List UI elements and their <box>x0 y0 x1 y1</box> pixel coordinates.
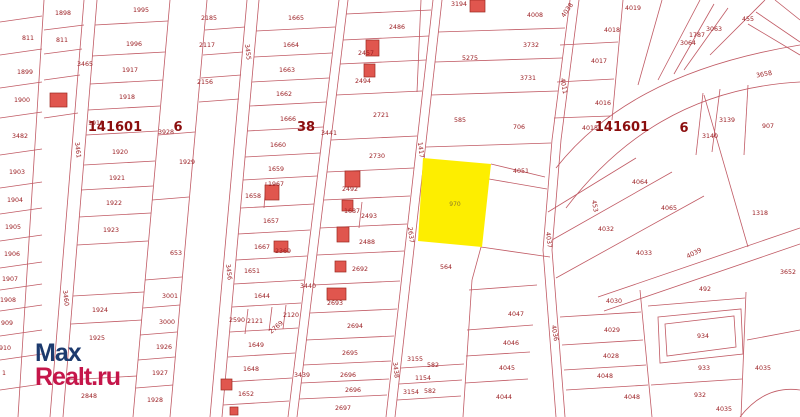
road-curve <box>740 389 800 417</box>
parcel-line <box>604 244 800 311</box>
parcel-number-label: 2637 <box>406 227 415 244</box>
parcel-line <box>651 379 742 385</box>
parcel-number-label: 2590 <box>229 317 245 324</box>
parcel-number-label: 4017 <box>591 58 607 65</box>
parcel-number-label: 2494 <box>355 78 371 85</box>
building-footprint <box>335 261 346 272</box>
parcel-line <box>481 247 550 257</box>
parcel-number-label: 1996 <box>126 41 142 48</box>
parcel-number-label: 4037 <box>544 232 553 249</box>
parcel-line <box>566 385 648 390</box>
parcel-number-label: 3440 <box>300 283 316 290</box>
parcel-line <box>426 143 551 147</box>
parcel-line <box>640 290 652 417</box>
parcel-number-label: 1318 <box>752 210 768 217</box>
parcel-line <box>438 28 565 32</box>
parcel-number-label: 3455 <box>243 44 252 61</box>
parcel-line <box>310 309 397 313</box>
parcel-line <box>241 204 314 208</box>
parcel-number-label: 492 <box>699 286 711 293</box>
building-footprint <box>364 64 375 77</box>
parcel-line <box>210 0 247 417</box>
block-number-label: 141601 <box>88 120 142 135</box>
parcel-number-label: 3456 <box>224 264 233 281</box>
parcel-number-label: 582 <box>424 388 436 395</box>
parcel-line <box>431 91 558 95</box>
parcel-number-label: 585 <box>454 117 466 124</box>
parcel-number-label: 1899 <box>17 69 33 76</box>
parcel-line <box>136 385 173 388</box>
building-footprint <box>230 407 238 415</box>
parcel-line <box>346 10 431 14</box>
parcel-number-label: 1904 <box>7 197 23 204</box>
parcel-line <box>90 80 163 84</box>
parcel-line <box>756 12 800 42</box>
parcel-line <box>201 75 241 78</box>
parcel-line <box>225 378 292 382</box>
parcel-line <box>199 99 239 102</box>
parcel-number-label: 907 <box>762 123 774 130</box>
building-footprint <box>327 288 346 300</box>
parcel-line <box>0 49 42 55</box>
parcel-number-label: 4045 <box>499 365 515 372</box>
parcel-line <box>88 106 160 110</box>
parcel-line <box>340 60 426 64</box>
parcel-line <box>145 277 182 280</box>
parcel-number-label: 1927 <box>152 370 168 377</box>
parcel-number-label: 1659 <box>268 166 284 173</box>
parcel-line <box>205 27 245 30</box>
parcel-line <box>133 0 170 417</box>
parcel-line <box>0 182 42 188</box>
parcel-number-label: 2369 <box>275 248 291 255</box>
parcel-number-label: 2493 <box>361 213 377 220</box>
parcel-line <box>301 379 389 383</box>
parcel-number-label: 2696 <box>340 372 356 379</box>
parcel-line <box>552 0 570 140</box>
parcel-line <box>81 186 153 190</box>
parcel-line <box>288 0 339 417</box>
parcel-number-label: 1644 <box>254 293 270 300</box>
parcel-line <box>95 21 168 25</box>
parcel-line <box>138 357 175 360</box>
parcel-number-label: 1 <box>2 370 6 377</box>
parcel-number-label: 4064 <box>632 179 648 186</box>
parcel-number-label: 1662 <box>276 91 292 98</box>
parcel-number-label: 2457 <box>358 50 374 57</box>
parcel-number-label: 1649 <box>248 342 264 349</box>
parcel-number-label: 653 <box>170 250 182 257</box>
block-number-label: 6 <box>173 120 182 135</box>
parcel-number-label: 3460 <box>61 290 70 307</box>
parcel-line <box>747 330 800 340</box>
parcel-number-label: 2721 <box>373 112 389 119</box>
parcel-number-label: 1663 <box>279 67 295 74</box>
parcel-line <box>775 0 800 20</box>
parcel-line <box>303 361 391 365</box>
parcel-number-label: 932 <box>694 392 706 399</box>
parcel-line <box>297 0 348 417</box>
parcel-number-label: 3731 <box>520 75 536 82</box>
parcel-number-label: 4018 <box>604 27 620 34</box>
parcel-line <box>254 53 332 57</box>
parcel-number-label: 1906 <box>4 251 20 258</box>
parcel-line <box>152 197 189 200</box>
parcel-number-label: 3482 <box>12 133 28 140</box>
parcel-line <box>435 58 562 62</box>
parcel-number-label: 3439 <box>294 372 310 379</box>
parcel-number-label: 811 <box>22 35 34 42</box>
parcel-line <box>230 328 298 332</box>
parcel-number-label: 3140 <box>702 133 718 140</box>
parcel-number-label: 1658 <box>245 193 261 200</box>
parcel-line <box>234 280 304 284</box>
building-footprint <box>221 379 232 390</box>
parcel-line <box>562 340 643 345</box>
parcel-line <box>306 336 394 340</box>
parcel-line <box>222 0 259 417</box>
parcel-number-label: 1923 <box>103 227 119 234</box>
parcel-line <box>327 168 414 172</box>
parcel-number-label: 4029 <box>604 327 620 334</box>
parcel-line <box>317 251 404 255</box>
parcel-line <box>252 78 329 82</box>
parcel-number-label: 4030 <box>606 298 622 305</box>
block-number-label: 141601 <box>595 120 649 135</box>
parcel-number-label: 2121 <box>247 318 263 325</box>
parcel-number-label: 3652 <box>780 269 796 276</box>
parcel-line <box>245 153 320 157</box>
parcel-line <box>552 140 561 250</box>
parcel-line <box>232 303 301 307</box>
parcel-number-label: 1660 <box>270 142 286 149</box>
parcel-number-label: 4039 <box>686 247 703 261</box>
parcel-line <box>561 0 579 140</box>
parcel-number-label: 4048 <box>597 373 613 380</box>
parcel-line <box>612 0 623 120</box>
parcel-line <box>0 305 42 311</box>
parcel-number-label: 3064 <box>680 40 696 47</box>
parcel-line <box>0 112 42 118</box>
parcel-number-label: 4035 <box>716 406 732 413</box>
parcel-number-label: 3139 <box>719 117 735 124</box>
parcel-number-label: 4035 <box>755 365 771 372</box>
parcel-number-label: 1917 <box>122 67 138 74</box>
parcel-number-label: 1907 <box>2 276 18 283</box>
parcel-line <box>79 213 151 217</box>
parcel-line <box>313 281 400 285</box>
parcel-number-label: 4047 <box>508 311 524 318</box>
parcel-number-label: 5275 <box>462 55 478 62</box>
parcel-number-label: 453 <box>590 200 599 213</box>
parcel-number-label: 1664 <box>283 42 299 49</box>
parcel-number-label: 4019 <box>625 5 641 12</box>
parcel-number-label: 1667 <box>254 244 270 251</box>
parcel-number-label: 1967 <box>268 181 284 188</box>
parcel-line <box>397 396 461 400</box>
parcel-line <box>44 49 82 54</box>
parcel-number-label: 1924 <box>92 307 108 314</box>
parcel-number-label: 909 <box>1 320 13 327</box>
parcel-number-label: 2695 <box>342 350 358 357</box>
parcel-line <box>489 179 547 189</box>
maxrealt-logo: Max Realt.ru <box>35 342 120 390</box>
parcel-line <box>0 82 42 88</box>
parcel-line <box>469 285 537 290</box>
parcel-number-label: 2156 <box>197 79 213 86</box>
parcel-number-label: 2693 <box>327 300 343 307</box>
parcel-line <box>0 235 42 241</box>
parcel-line <box>84 161 155 165</box>
parcel-number-label: 1929 <box>179 159 195 166</box>
parcel-number-label: 2486 <box>389 24 405 31</box>
parcel-number-label: 564 <box>440 264 452 271</box>
parcel-number-label: 1921 <box>109 175 125 182</box>
parcel-number-label: 2694 <box>347 323 363 330</box>
parcel-number-label: 2697 <box>335 405 351 412</box>
parcel-number-label: 2120 <box>283 312 299 319</box>
parcel-number-label: 1908 <box>0 297 16 304</box>
building-footprint <box>345 171 360 187</box>
parcel-number-label: 1665 <box>288 15 304 22</box>
parcel-line <box>140 332 177 335</box>
parcel-number-label: 1918 <box>119 94 135 101</box>
parcel-number-label: 4046 <box>503 340 519 347</box>
parcel-number-label: 1898 <box>55 10 71 17</box>
parcel-line <box>143 305 180 308</box>
parcel-number-label: 811 <box>56 37 68 44</box>
parcel-number-label: 4044 <box>496 394 512 401</box>
parcel-number-label: 4016 <box>595 100 611 107</box>
parcel-number-label: 1995 <box>133 7 149 14</box>
parcel-line <box>0 16 42 22</box>
parcel-number-label: 4028 <box>603 353 619 360</box>
parcel-number-label: 2848 <box>81 393 97 400</box>
parcel-line <box>256 27 335 31</box>
building-footprint <box>50 93 67 107</box>
parcel-line <box>170 0 207 417</box>
parcel-number-label: 3438 <box>391 362 400 379</box>
parcel-line <box>463 280 472 417</box>
parcel-line <box>44 25 84 30</box>
parcel-line <box>331 136 417 140</box>
parcel-line <box>44 75 80 80</box>
parcel-number-label: 2696 <box>345 387 361 394</box>
parcel-line <box>236 256 307 260</box>
parcel-line <box>324 196 410 200</box>
parcel-line <box>223 401 289 405</box>
parcel-line <box>472 247 481 280</box>
parcel-line <box>744 85 748 155</box>
parcel-line <box>71 320 142 324</box>
parcel-number-label: 3000 <box>159 319 175 326</box>
parcel-number-label: 933 <box>698 365 710 372</box>
parcel-number-label: 3465 <box>77 61 93 68</box>
parcel-number-label: 706 <box>513 124 525 131</box>
parcel-line <box>0 330 42 336</box>
parcel-number-label: 2492 <box>342 186 358 193</box>
parcel-number-label: 1900 <box>14 97 30 104</box>
building-footprint <box>337 227 349 242</box>
parcel-line <box>228 353 295 357</box>
parcel-line <box>467 325 533 330</box>
logo-line2: Realt.ru <box>35 366 120 390</box>
parcel-line <box>638 0 662 85</box>
parcel-line <box>466 352 530 356</box>
parcel-number-label: 3154 <box>403 389 419 396</box>
parcel-line <box>250 102 326 106</box>
parcel-line <box>238 230 310 234</box>
parcel-number-label: 1926 <box>156 344 172 351</box>
parcel-number-label: 1928 <box>147 397 163 404</box>
parcel-number-label: 2185 <box>201 15 217 22</box>
parcel-number-label: 1687 <box>344 208 360 215</box>
parcel-number-label: 934 <box>697 333 709 340</box>
parcel-line <box>343 36 429 40</box>
parcel-number-label: 2488 <box>359 239 375 246</box>
parcel-number-label: 910 <box>0 345 11 352</box>
parcel-number-label: 3001 <box>162 293 178 300</box>
parcel-number-label: 1651 <box>244 268 260 275</box>
parcel-line <box>0 262 42 268</box>
parcel-number-label: 4008 <box>527 12 543 19</box>
parcel-line <box>44 113 78 118</box>
parcel-number-label: 2730 <box>369 153 385 160</box>
parcel-line <box>560 42 618 45</box>
parcel-number-label: 1666 <box>280 116 296 123</box>
parcel-line <box>417 0 421 92</box>
block-number-label: 6 <box>679 121 688 136</box>
parcel-line <box>0 284 42 290</box>
parcel-number-label: 4011 <box>558 78 568 95</box>
parcel-number-label: 1648 <box>243 366 259 373</box>
parcel-line <box>336 91 422 95</box>
parcel-line <box>556 196 704 278</box>
parcel-line <box>748 24 800 55</box>
parcel-number-label: 2769 <box>268 320 285 336</box>
parcel-number-label: 4048 <box>624 394 640 401</box>
parcel-line <box>73 292 144 296</box>
parcel-number-label: 582 <box>427 362 439 369</box>
parcel-line <box>203 52 243 55</box>
parcel-number-label: 1922 <box>106 200 122 207</box>
parcel-number-label: 1657 <box>263 218 279 225</box>
parcel-line <box>320 224 407 228</box>
parcel-number-label: 1920 <box>112 149 128 156</box>
building-footprint <box>470 0 485 12</box>
parcel-number-label: 4032 <box>598 226 614 233</box>
parcel-line <box>465 379 528 383</box>
highlighted-parcel-number: 970 <box>449 201 461 208</box>
parcel-line <box>243 176 317 180</box>
parcel-line <box>0 149 42 155</box>
parcel-number-label: 4036 <box>549 325 559 342</box>
parcel-number-label: 2692 <box>352 266 368 273</box>
parcel-number-label: 4065 <box>661 205 677 212</box>
parcel-number-label: 3658 <box>756 70 773 80</box>
parcel-number-label: 1417 <box>416 142 425 159</box>
parcel-line <box>0 208 42 214</box>
parcel-number-label: 4033 <box>636 250 652 257</box>
parcel-number-label: 455 <box>742 16 754 23</box>
parcel-number-label: 2117 <box>199 42 215 49</box>
parcel-number-label: 4038 <box>560 2 575 19</box>
parcel-number-label: 3928 <box>158 129 174 136</box>
parcel-number-label: 3194 <box>451 1 467 8</box>
parcel-number-label: 1903 <box>9 169 25 176</box>
parcel-number-label: 3461 <box>73 142 82 159</box>
parcel-line <box>560 312 641 317</box>
parcel-line <box>77 241 148 245</box>
parcel-line <box>554 116 610 118</box>
parcel-number-label: 3063 <box>706 26 722 33</box>
parcel-line <box>92 52 165 56</box>
parcel-number-label: 4051 <box>513 168 529 175</box>
parcel-number-label: 1154 <box>415 375 431 382</box>
parcel-line <box>648 298 745 306</box>
parcel-line <box>299 395 387 399</box>
block-number-label: 38 <box>297 120 315 135</box>
parcel-line <box>564 365 646 370</box>
parcel-number-label: 3732 <box>523 42 539 49</box>
parcel-number-label: 1905 <box>5 224 21 231</box>
parcel-number-label: 1787 <box>689 32 705 39</box>
parcel-number-label: 1652 <box>238 391 254 398</box>
parcel-number-label: 3441 <box>321 130 337 137</box>
cadastral-map-screenshot: 9701898811811189919003482190319041905190… <box>0 0 800 417</box>
parcel-number-label: 3155 <box>407 356 423 363</box>
